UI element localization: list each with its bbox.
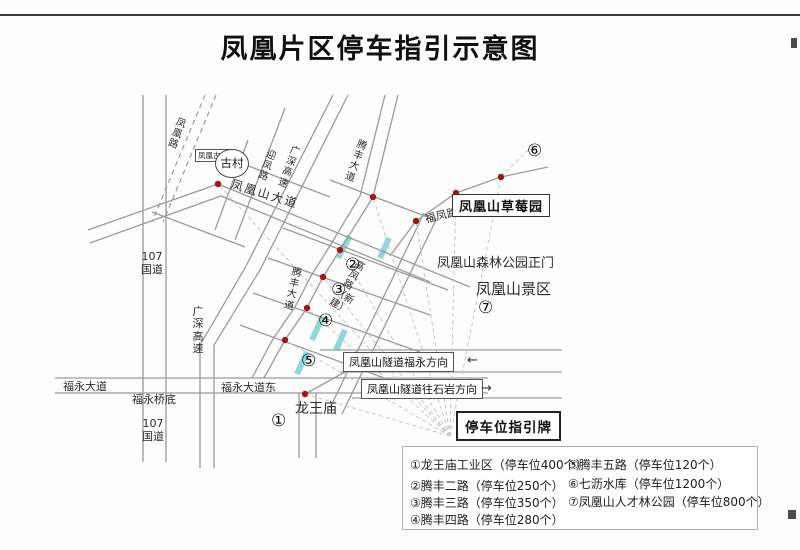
map-marker-6: ⑥ (527, 141, 542, 161)
legend-item-1: ①龙王庙工业区（停车位400个） (410, 456, 588, 473)
right-arrow-icon: → (481, 381, 492, 396)
place-label-strawberry-garden: 凤凰山草莓园 (452, 194, 550, 217)
road-label-tunnel-to-shiyan: 凤凰山隧道往石岩方向 (361, 379, 483, 399)
road-label-g107-north: 107国道 (141, 251, 163, 276)
legend-item-6: ⑥七沥水库（停车位1200个） (568, 475, 729, 492)
parking-sign-label: 停车位指引牌 (456, 411, 561, 441)
legend-item-4: ④腾丰四路（停车位280个） (410, 511, 564, 528)
map-marker-3: ③ (331, 280, 346, 300)
legend-item-5: ⑤腾丰五路（停车位120个） (568, 456, 722, 473)
road-label-fuyong-avenue: 福永大道 (63, 381, 107, 393)
road-label-fuyong-bridge: 福永桥底 (132, 394, 176, 406)
place-label-gucun-circle: 古村 (215, 149, 249, 178)
map-marker-2: ② (345, 255, 360, 275)
place-label-forest-park-gate: 凤凰山森林公园正门 (437, 257, 554, 271)
road-label-guangshen-expressway-vertical: 广深高速 (191, 306, 205, 355)
legend-item-7: ⑦凤凰山人才林公园（停车位800个） (568, 493, 770, 510)
road-label-fuyong-avenue-east: 福永大道东 (221, 382, 276, 394)
map-marker-7: ⑦ (478, 298, 493, 318)
place-label-scenic-area: 凤凰山景区 (476, 281, 551, 298)
map-marker-4: ④ (318, 311, 333, 331)
road-label-tunnel-to-fuyong: 凤凰山隧道福永方向 (343, 352, 454, 372)
map-marker-5: ⑤ (301, 351, 316, 371)
legend-item-3: ③腾丰三路（停车位350个） (410, 494, 564, 511)
road-label-g107-south: 107国道 (142, 418, 164, 443)
map-marker-1: ① (271, 411, 286, 431)
left-arrow-icon: ← (467, 353, 478, 368)
map-page: 凤凰片区停车指引示意图 (0, 0, 800, 550)
place-label-longwang-temple: 龙王庙 (295, 402, 337, 417)
legend-item-2: ②腾丰二路（停车位250个） (410, 477, 564, 494)
